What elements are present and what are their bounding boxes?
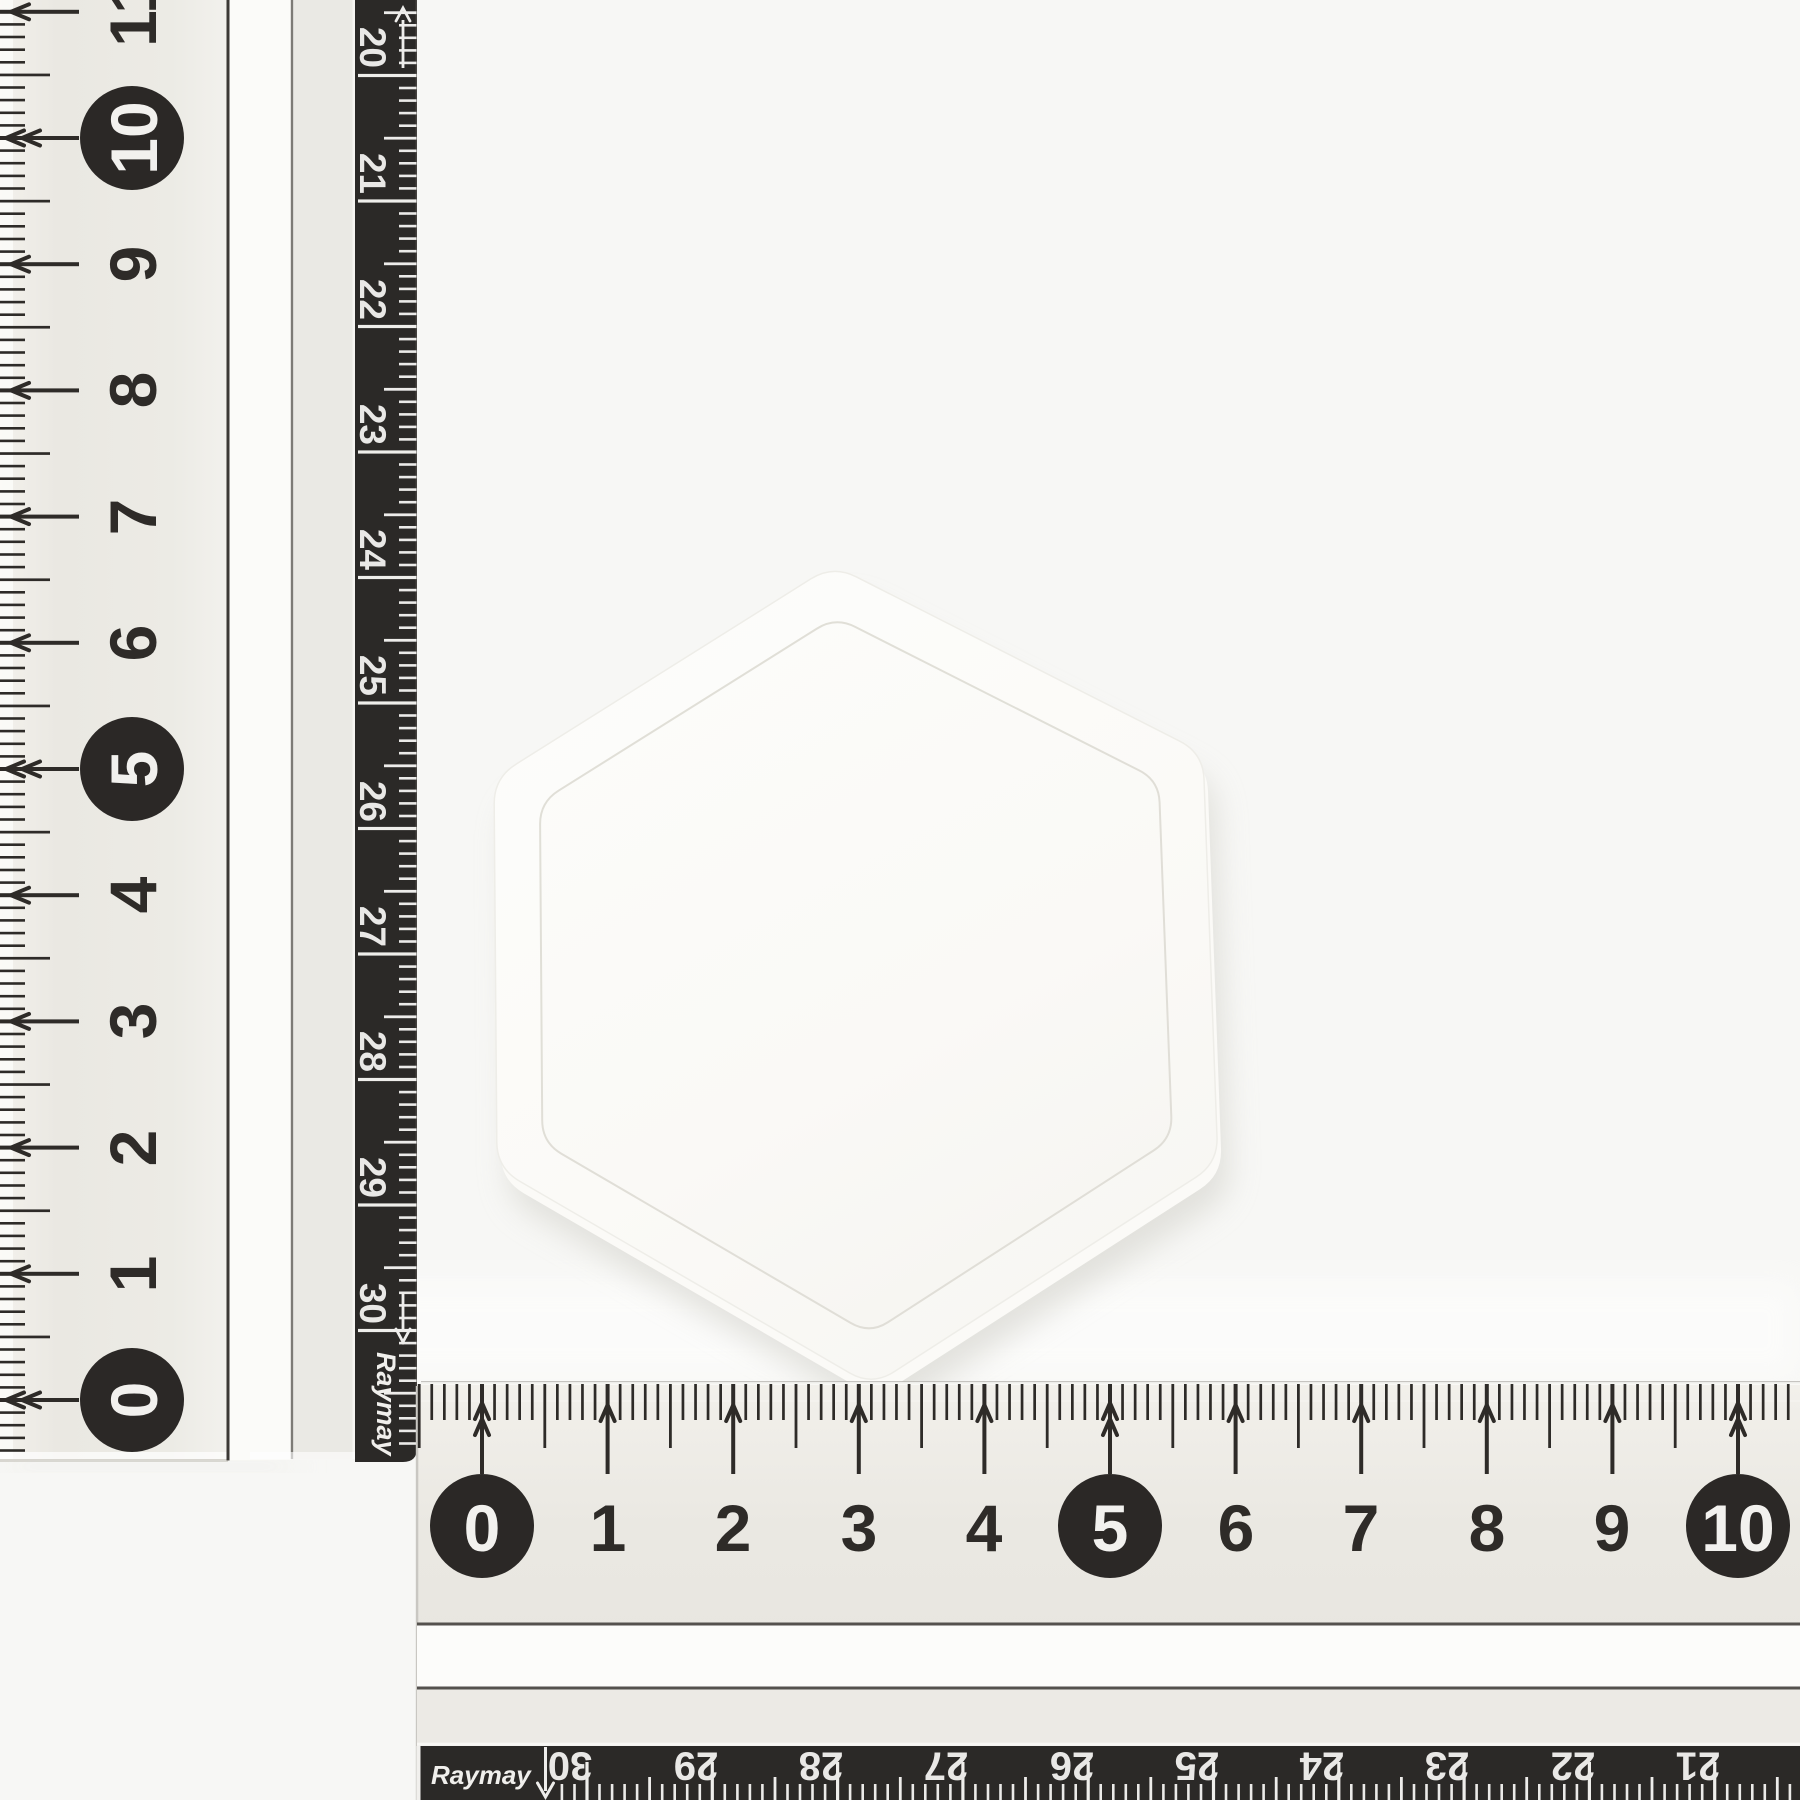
svg-text:5: 5 [1092, 1491, 1129, 1565]
svg-text:21: 21 [352, 153, 393, 194]
svg-text:3: 3 [96, 1003, 170, 1040]
svg-text:26: 26 [352, 781, 393, 822]
svg-text:10: 10 [1701, 1491, 1774, 1565]
svg-text:1: 1 [96, 1256, 170, 1293]
svg-text:29: 29 [352, 1157, 393, 1198]
svg-text:2: 2 [715, 1491, 752, 1565]
svg-text:27: 27 [924, 1744, 969, 1788]
svg-text:28: 28 [799, 1744, 844, 1788]
svg-text:21: 21 [1676, 1744, 1721, 1788]
svg-text:10: 10 [97, 101, 171, 174]
svg-text:22: 22 [352, 279, 393, 320]
svg-text:24: 24 [352, 529, 393, 571]
svg-text:Raymay: Raymay [431, 1760, 532, 1790]
svg-text:6: 6 [96, 625, 170, 662]
svg-text:4: 4 [96, 876, 170, 913]
svg-text:27: 27 [352, 906, 393, 947]
svg-text:11: 11 [96, 0, 170, 47]
svg-text:25: 25 [1175, 1744, 1220, 1788]
svg-text:1: 1 [590, 1491, 627, 1565]
svg-text:3: 3 [841, 1491, 878, 1565]
svg-text:24: 24 [1299, 1744, 1344, 1788]
svg-text:0: 0 [97, 1382, 171, 1419]
svg-text:25: 25 [352, 655, 393, 696]
svg-text:5: 5 [97, 751, 171, 788]
svg-text:20: 20 [352, 27, 393, 68]
svg-text:2: 2 [96, 1130, 170, 1167]
svg-text:9: 9 [1594, 1491, 1631, 1565]
svg-text:4: 4 [966, 1491, 1003, 1565]
svg-text:30: 30 [548, 1744, 593, 1788]
svg-text:8: 8 [96, 372, 170, 409]
svg-text:26: 26 [1050, 1744, 1095, 1788]
svg-text:6: 6 [1218, 1491, 1255, 1565]
svg-text:7: 7 [1343, 1491, 1380, 1565]
svg-text:0: 0 [464, 1491, 501, 1565]
svg-text:23: 23 [352, 404, 393, 445]
svg-text:28: 28 [352, 1031, 393, 1072]
svg-text:22: 22 [1551, 1744, 1596, 1788]
svg-text:30: 30 [352, 1283, 393, 1324]
svg-text:Raymay: Raymay [371, 1352, 401, 1458]
svg-text:23: 23 [1425, 1744, 1470, 1788]
svg-text:9: 9 [96, 246, 170, 283]
svg-text:7: 7 [96, 499, 170, 536]
svg-text:8: 8 [1469, 1491, 1506, 1565]
svg-text:29: 29 [674, 1744, 719, 1788]
